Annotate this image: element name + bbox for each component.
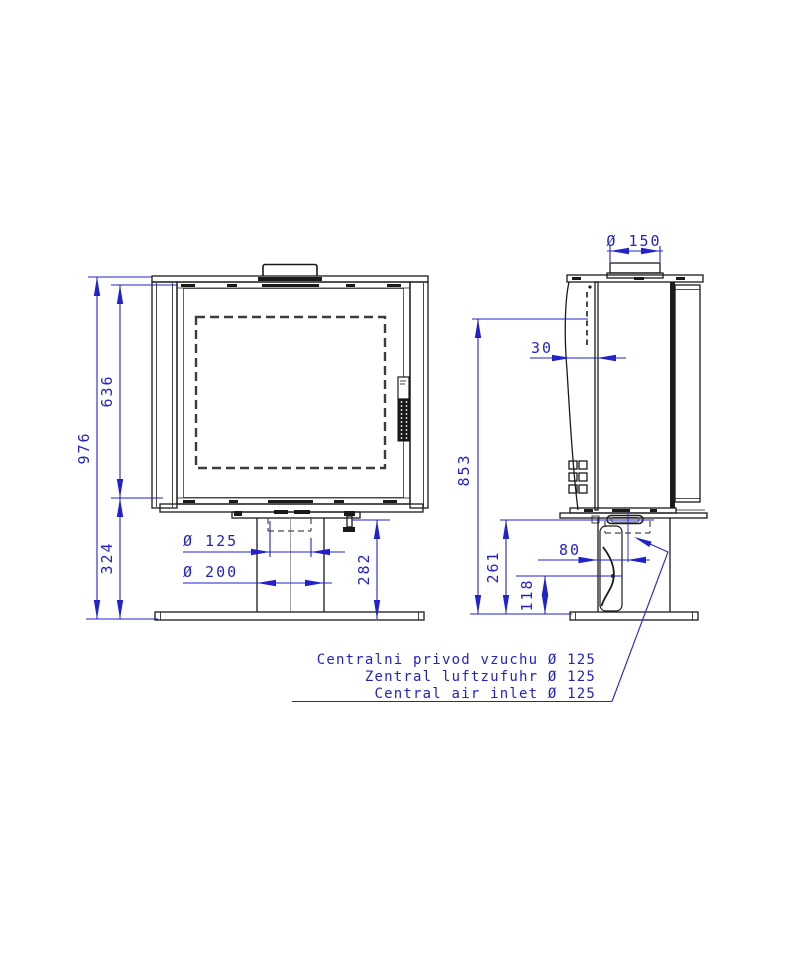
handle-knurl-grip	[398, 399, 409, 441]
note-leader-line	[612, 544, 668, 702]
dim-air-inlet-diameter: Ø 125	[183, 532, 345, 555]
dim-label-inlet-section-height: 261	[484, 550, 502, 583]
dim-duct-joint-height: 118	[518, 576, 548, 614]
bottom-plate-front	[160, 504, 423, 512]
side-bottom-mark-1	[584, 509, 593, 512]
top-plate-dark-bar	[258, 277, 322, 281]
plate-mark-3	[676, 277, 685, 280]
air-inlet-hidden-box-front	[268, 518, 311, 531]
door-handle	[398, 377, 409, 441]
note-czech: Centralni privod vzuchu Ø 125	[317, 652, 596, 668]
note-leader-arrow	[634, 537, 652, 547]
side-vent-grilles	[569, 461, 587, 493]
handle-upper	[398, 377, 409, 399]
dim-label-inlet-center-offset: 80	[559, 541, 581, 559]
dim-label-air-inlet-diameter: Ø 125	[183, 532, 238, 550]
glass-dashed-outline	[196, 317, 385, 468]
stove-dimension-drawing: 976 636 324 Ø 125 Ø 200 282 Ø 15	[0, 0, 800, 960]
pedestal-front	[257, 518, 324, 612]
dim-firebox-height: 636	[98, 285, 123, 498]
base-plate-side	[570, 612, 698, 620]
plate-mark-1	[572, 277, 581, 280]
side-view	[560, 263, 707, 620]
dim-pedestal-height: 324	[98, 498, 123, 619]
dim-label-rear-outlet-height: 853	[455, 453, 473, 486]
dim-label-firebox-height: 636	[98, 374, 116, 407]
dim-label-flue-diameter: Ø 150	[606, 232, 661, 250]
dim-pedestal-section-height: 282	[355, 520, 380, 619]
rear-heat-shield	[675, 285, 700, 502]
rear-wall	[670, 282, 675, 508]
flue-cap-front	[263, 265, 317, 277]
dim-label-pedestal-section-height: 282	[355, 552, 373, 585]
front-wall-side	[595, 282, 598, 510]
right-side-panel	[410, 282, 428, 508]
dim-label-pedestal-height: 324	[98, 541, 116, 574]
note-english: Central air inlet Ø 125	[375, 686, 596, 702]
top-vent-dashes	[181, 284, 401, 287]
technical-drawing-page: 976 636 324 Ø 125 Ø 200 282 Ø 15	[0, 0, 800, 960]
dim-label-overall-height: 976	[75, 431, 93, 464]
dim-rear-outlet-height: 853	[455, 319, 481, 614]
plate-mark-2	[634, 277, 644, 280]
stove-door	[177, 282, 410, 504]
side-bottom-mark-3	[650, 509, 657, 512]
pedestal-side	[598, 518, 670, 612]
inlet-flange-mark-2	[294, 510, 310, 514]
dim-overall-height: 976	[75, 277, 100, 619]
dim-flue-diameter: Ø 150	[606, 232, 663, 254]
dim-inlet-center-offset: 80	[538, 541, 650, 563]
bracket-bolt-left	[234, 511, 242, 516]
dim-label-duct-joint-height: 118	[518, 578, 536, 611]
side-bottom-mark-2	[612, 509, 630, 512]
adjuster-foot	[343, 511, 355, 532]
left-side-panel	[152, 282, 177, 508]
dim-label-rear-gap: 30	[531, 339, 553, 357]
note-german: Zentral luftzufuhr Ø 125	[365, 669, 596, 685]
dim-label-pedestal-tube-diameter: Ø 200	[183, 563, 238, 581]
flue-collar	[607, 263, 663, 278]
dim-rear-gap: 30	[530, 339, 626, 361]
dim-inlet-section-height: 261	[484, 520, 509, 614]
bottom-vent-dashes	[183, 500, 397, 503]
base-plate-front	[155, 612, 424, 620]
air-duct-cover	[600, 526, 622, 611]
curved-door-front	[565, 282, 578, 510]
door-inner-frame	[184, 289, 404, 498]
top-mark-dot	[588, 285, 591, 288]
inlet-flange-mark-1	[274, 510, 288, 514]
